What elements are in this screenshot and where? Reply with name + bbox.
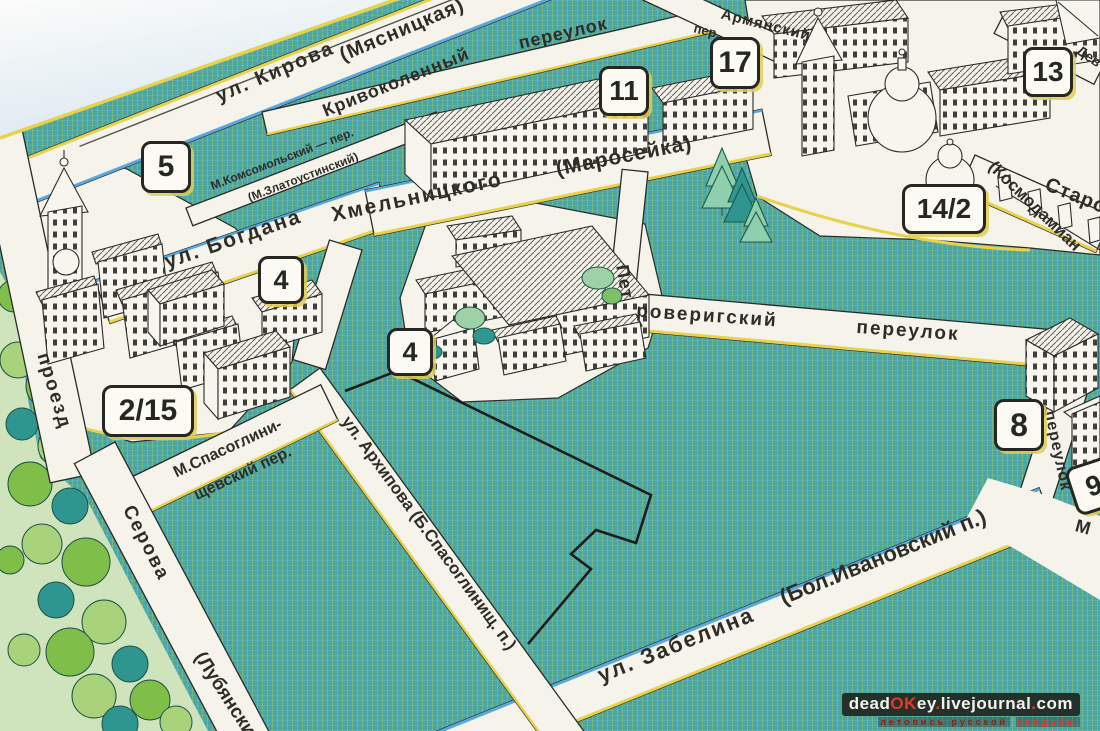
watermark-tagline-1: летопись русской (878, 717, 1010, 727)
house-number-badge-8: 8 (994, 399, 1044, 451)
house-number-badge-4b: 4 (387, 328, 433, 376)
house-number-badge-14-2: 14/2 (902, 184, 986, 234)
watermark-url: deadOKey.livejournal.com (842, 693, 1080, 716)
watermark-seg-dead: dead (849, 694, 891, 713)
house-number-badge-2-15: 2/15 (102, 385, 194, 437)
house-number-badge-4a: 4 (258, 256, 304, 304)
house-number-badge-17: 17 (710, 37, 760, 89)
map-screenshot: ул. Кирова (Мясницкая) Кривоколенный пер… (0, 0, 1100, 731)
watermark-tagline-2: усадьбы (1016, 717, 1080, 727)
house-number-badge-5: 5 (141, 141, 191, 193)
watermark-seg-ey: ey (917, 694, 936, 713)
map-graphic (0, 0, 1100, 731)
watermark-seg-livejournal: livejournal (941, 694, 1032, 713)
watermark-seg-ok: OK (890, 694, 917, 713)
house-number-badge-13: 13 (1023, 47, 1073, 97)
watermark-seg-com: com (1037, 694, 1073, 713)
watermark: deadOKey.livejournal.com летопись русско… (842, 693, 1080, 727)
watermark-tagline: летопись русской усадьбы (842, 717, 1080, 727)
house-number-badge-11: 11 (599, 66, 649, 116)
